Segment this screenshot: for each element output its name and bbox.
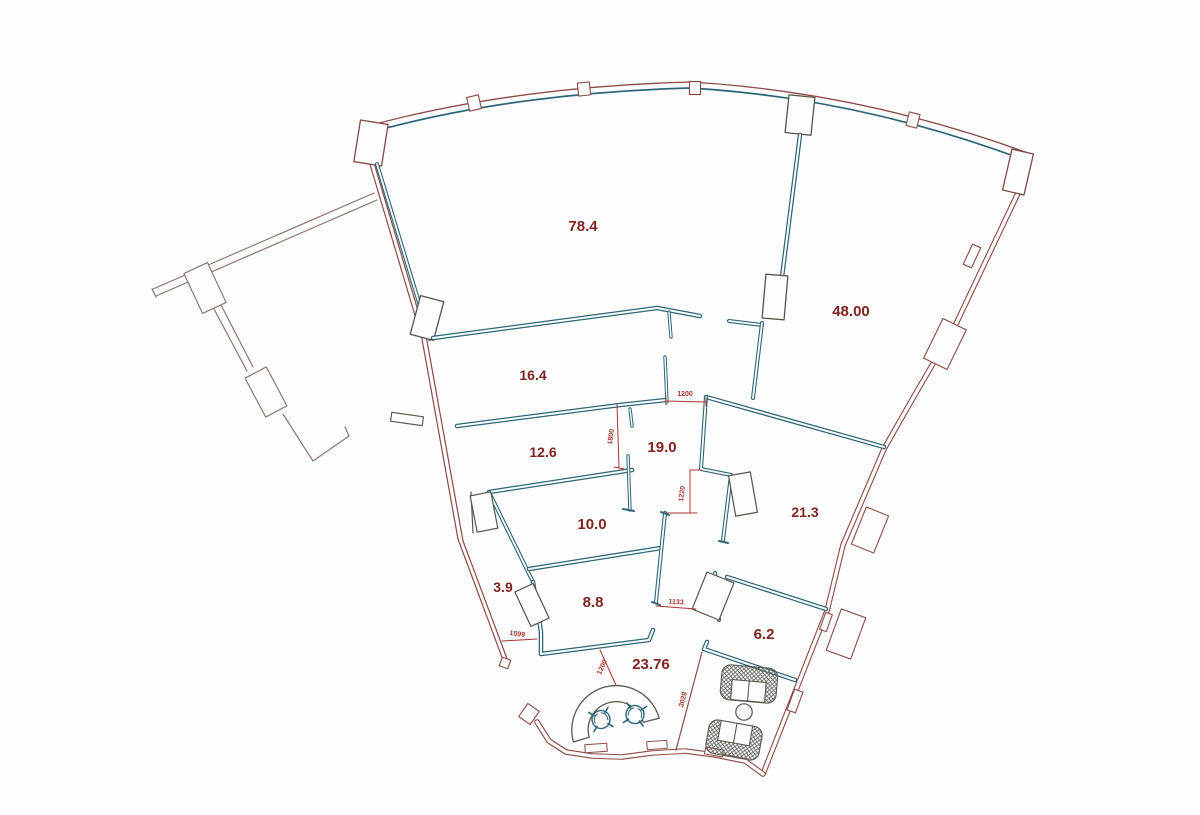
svg-text:23.76: 23.76 xyxy=(632,656,670,673)
svg-text:12.6: 12.6 xyxy=(529,444,556,460)
svg-text:10.0: 10.0 xyxy=(577,516,606,533)
svg-text:16.4: 16.4 xyxy=(519,367,546,383)
svg-text:1133: 1133 xyxy=(668,598,684,606)
svg-text:3.9: 3.9 xyxy=(493,579,513,595)
svg-text:6.2: 6.2 xyxy=(754,626,775,643)
svg-text:78.4: 78.4 xyxy=(568,218,598,235)
svg-text:19.0: 19.0 xyxy=(647,439,676,456)
svg-text:21.3: 21.3 xyxy=(791,504,818,520)
svg-text:1200: 1200 xyxy=(677,391,693,398)
svg-text:48.00: 48.00 xyxy=(832,303,870,320)
svg-text:8.8: 8.8 xyxy=(583,594,604,611)
